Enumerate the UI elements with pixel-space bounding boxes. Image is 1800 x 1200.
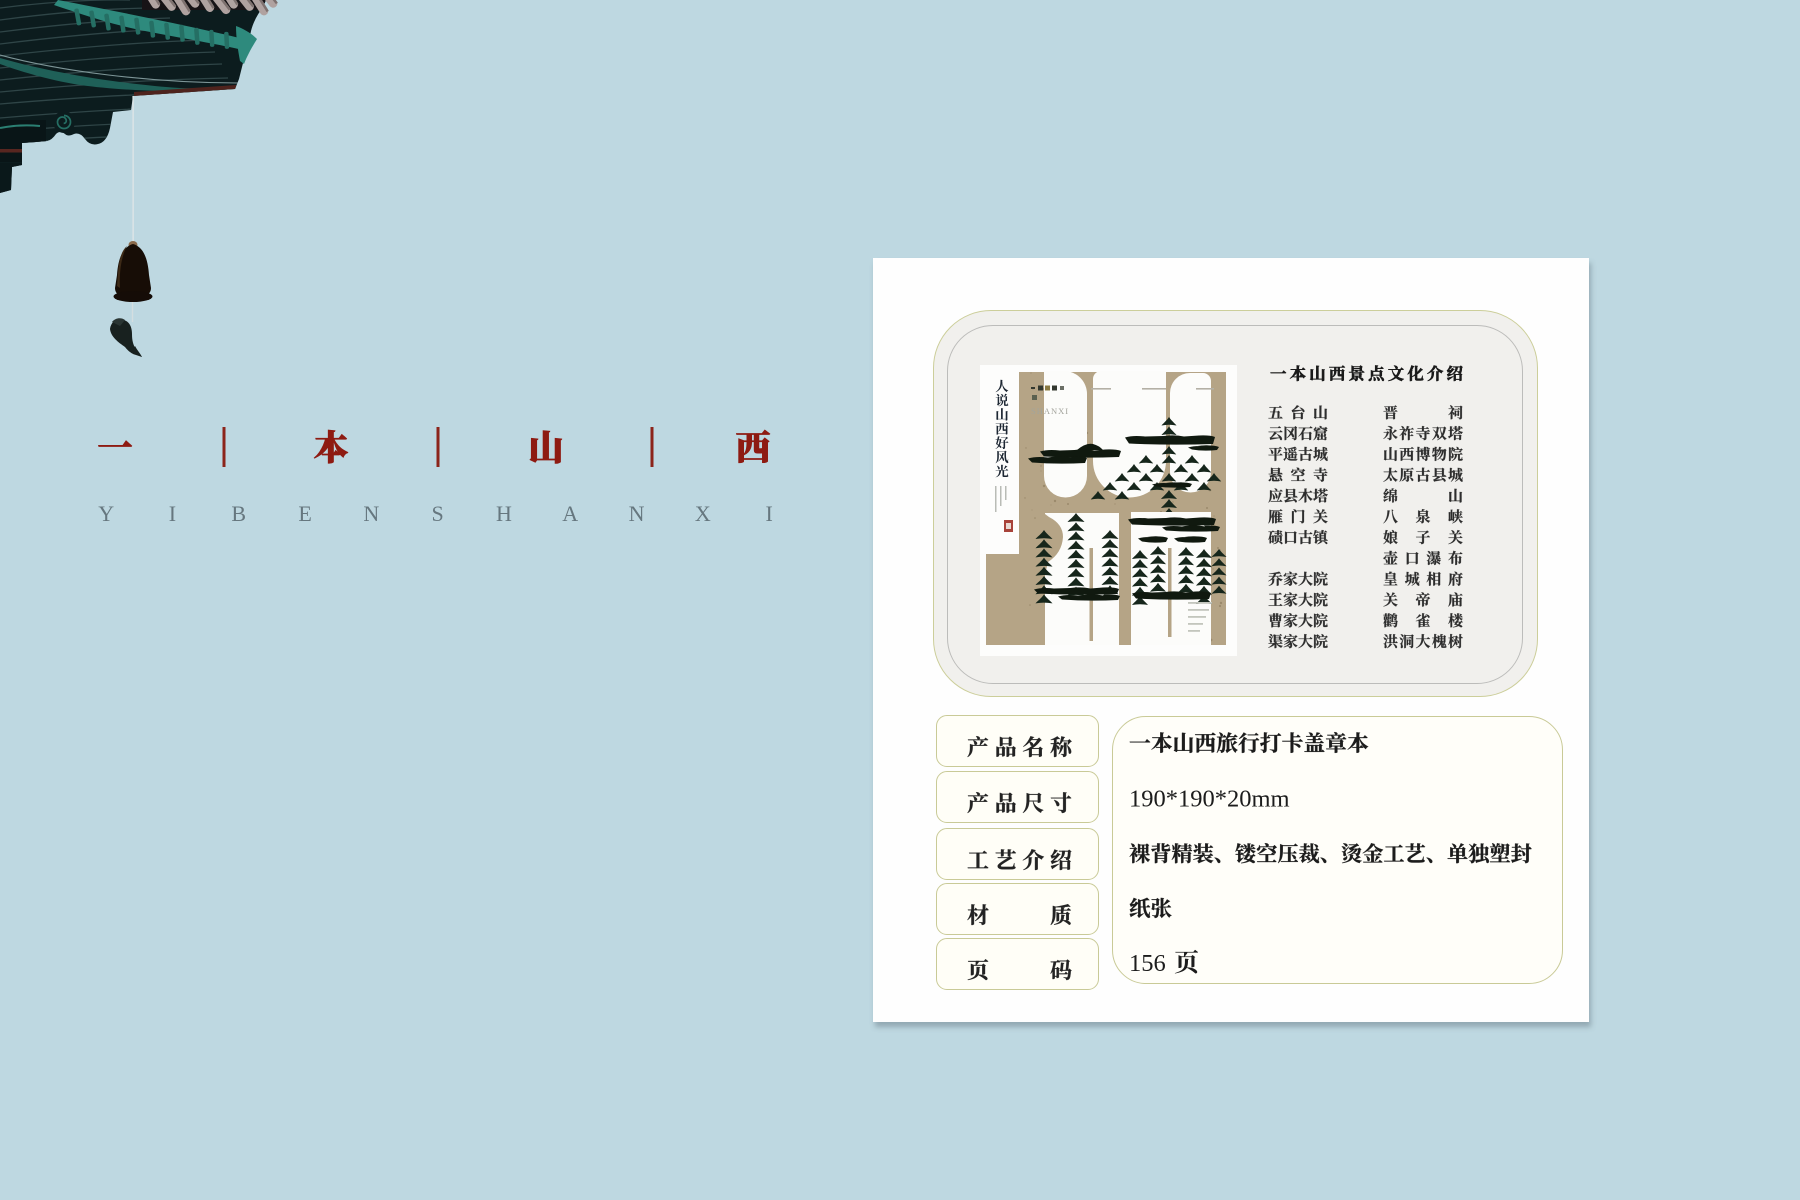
svg-text:190*190*20mm: 190*190*20mm (1129, 785, 1290, 812)
svg-text:SHANXI: SHANXI (1031, 406, 1069, 416)
svg-text:156: 156 (1129, 950, 1166, 977)
